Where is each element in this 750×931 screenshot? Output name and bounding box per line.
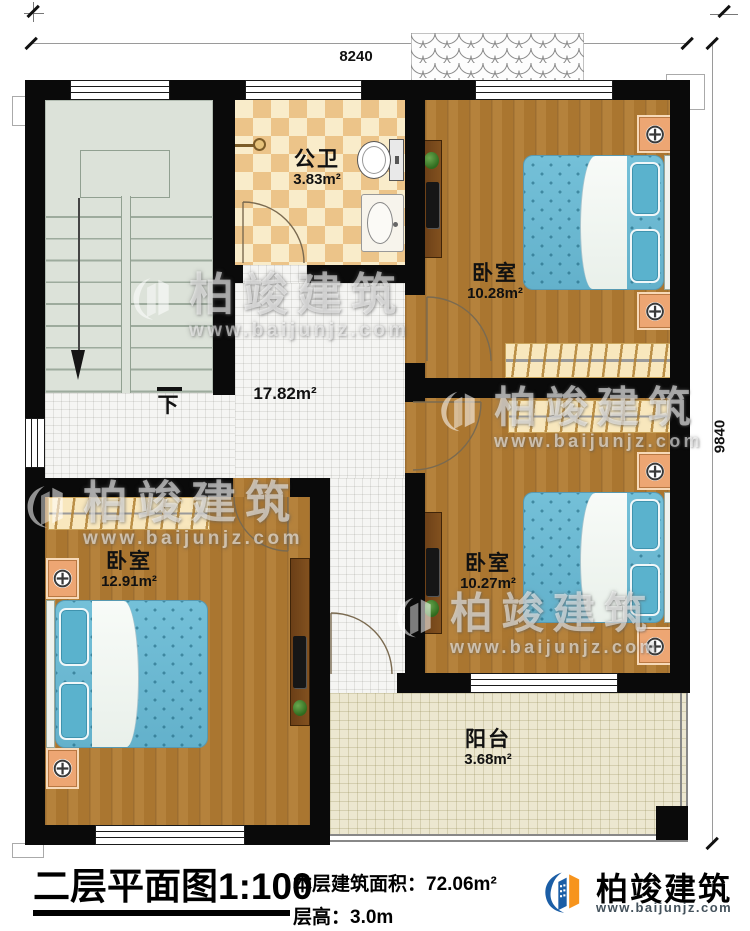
room-area: 10.28m² [435,286,555,303]
room-name: 卧室 [428,552,548,576]
stairs-down-text: 下 [152,394,186,418]
bedroom-top-right-label: 卧室 10.28m² [435,262,555,302]
brand-url: www.baijunjz.com [596,900,732,915]
floor-height-label: 层高： [293,907,350,928]
bedroom-top-right-door [427,297,491,361]
stair-direction-label: 下 [152,394,186,418]
bathroom-door [243,202,304,263]
floor-height-value: 3.0m [350,907,393,928]
room-name: 卧室 [69,550,189,574]
bedroom-middle-right-label: 卧室 10.27m² [428,552,548,592]
plan-title-text: 二层平面图 [33,866,218,907]
room-area: 17.82m² [225,384,345,403]
room-area: 12.91m² [69,574,189,591]
bathroom-label: 公卫 3.83m² [257,148,377,188]
balcony-label: 阳台 3.68m² [428,728,548,768]
room-name: 卧室 [435,262,555,286]
room-area: 3.83m² [257,172,377,189]
hall-area-label: 17.82m² [225,384,345,403]
title-underline [33,910,290,916]
room-name: 阳台 [428,728,548,752]
room-name: 公卫 [257,148,377,172]
plan-title: 二层平面图1:100 [33,856,313,910]
bedroom-bottom-left-label: 卧室 12.91m² [69,550,189,590]
floor-area-line: 本层建筑面积：72.06m² [293,869,497,896]
bedroom-middle-right-door [413,402,481,470]
floor-area-value: 72.06m² [426,874,497,895]
floor-area-label: 本层建筑面积： [293,874,426,895]
room-area: 10.27m² [428,576,548,593]
room-area: 3.68m² [428,752,548,769]
door-swings [0,0,750,931]
balcony-door [331,613,392,674]
bedroom-bottom-left-door [234,497,288,551]
floor-plan-canvas: 8240 9840 [0,0,750,931]
floor-height-line: 层高：3.0m [293,902,393,929]
brand-logo-icon [540,862,590,920]
